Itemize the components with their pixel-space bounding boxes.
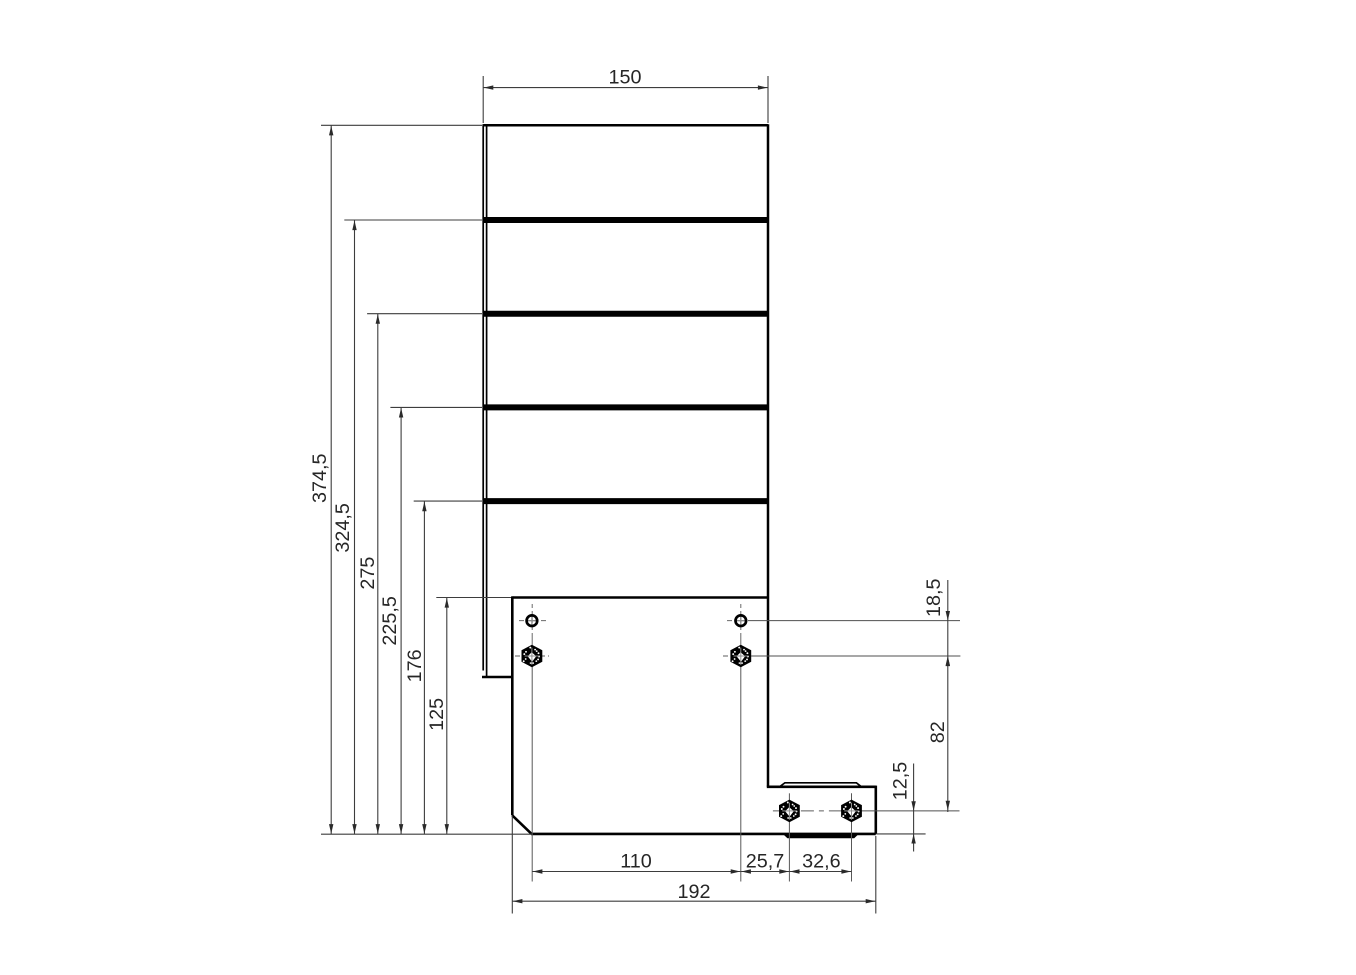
svg-text:32,6: 32,6 [802,851,841,873]
svg-text:18,5: 18,5 [923,579,945,618]
svg-text:125: 125 [426,698,448,731]
svg-text:12,5: 12,5 [890,762,912,801]
svg-text:150: 150 [608,66,641,88]
svg-text:275: 275 [357,557,379,590]
svg-text:25,7: 25,7 [746,851,785,873]
svg-text:374,5: 374,5 [309,454,331,504]
svg-text:324,5: 324,5 [332,503,354,553]
svg-text:110: 110 [620,851,652,873]
svg-text:192: 192 [677,881,710,903]
svg-text:225,5: 225,5 [379,596,401,646]
svg-text:176: 176 [404,649,426,682]
svg-text:82: 82 [927,721,949,743]
